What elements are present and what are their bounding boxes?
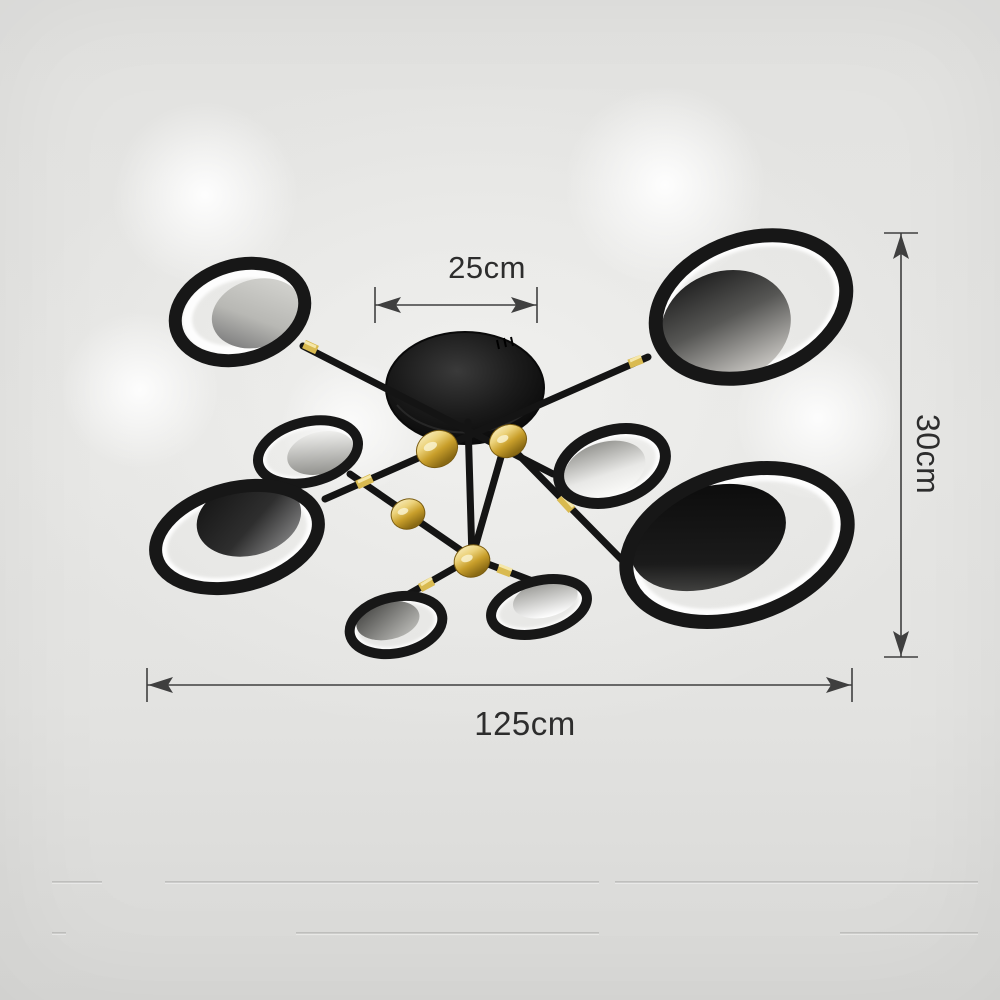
- product-photo: 25cm 30cm 125cm: [0, 0, 1000, 1000]
- lamp-ring: [344, 588, 448, 662]
- lamp-ring: [485, 570, 593, 644]
- lamp-ring: [636, 211, 866, 403]
- height-label: 30cm: [910, 414, 946, 494]
- canopy-width-label: 25cm: [448, 250, 526, 285]
- lamp-ring: [606, 441, 867, 648]
- ceiling-lamp-illustration: 25cm 30cm 125cm: [0, 0, 1000, 1000]
- dimension-height: 30cm: [884, 233, 946, 657]
- lamp-ring: [164, 249, 317, 376]
- overall-width-label: 125cm: [474, 705, 576, 742]
- dimension-canopy-width: 25cm: [375, 250, 537, 323]
- faint-divider-lines: [52, 882, 978, 934]
- dimension-overall-width: 125cm: [147, 668, 852, 742]
